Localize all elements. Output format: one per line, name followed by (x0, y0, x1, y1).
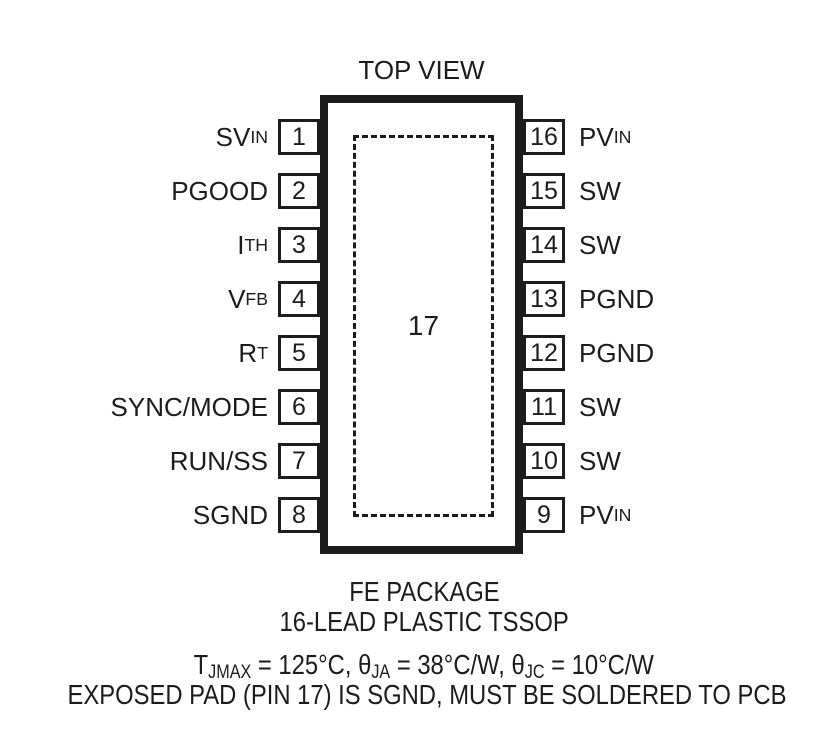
pin-label: PGND (579, 281, 654, 317)
caption-block: FE PACKAGE 16-LEAD PLASTIC TSSOP TJMAX =… (4, 577, 840, 710)
pin-number: 12 (530, 339, 558, 368)
pin-number: 9 (537, 501, 551, 530)
pin-box: 4 (278, 281, 320, 317)
pin-box: 8 (278, 497, 320, 533)
pin-number: 11 (531, 393, 557, 422)
pin-number: 15 (530, 177, 558, 206)
pin-number: 6 (292, 393, 306, 422)
pin-box: 5 (278, 335, 320, 371)
pin-label: PVIN (579, 497, 631, 533)
pin-label: PGND (579, 335, 654, 371)
pin-box: 15 (523, 173, 565, 209)
pin-row: 9PVIN (523, 497, 840, 551)
pin-number: 3 (292, 231, 306, 260)
pin-label: PVIN (579, 119, 631, 155)
pin-number: 14 (530, 231, 558, 260)
pin-label: SW (579, 389, 621, 425)
exposed-pad-note-line: EXPOSED PAD (PIN 17) IS SGND, MUST BE SO… (4, 680, 840, 710)
pin-number: 5 (292, 339, 306, 368)
right-pin-column: 16PVIN15SW14SW13PGND12PGND11SW10SW9PVIN (523, 119, 840, 551)
thermal-note-line: TJMAX = 125°C, θJA = 38°C/W, θJC = 10°C/… (4, 650, 840, 680)
pin-row: SGND8 (0, 497, 320, 551)
pin-row: RUN/SS7 (0, 443, 320, 497)
pin-box: 3 (278, 227, 320, 263)
pin-number: 16 (530, 123, 558, 152)
pin-label: SYNC/MODE (111, 389, 268, 425)
pin-row: 13PGND (523, 281, 840, 335)
pin-row: SVIN1 (0, 119, 320, 173)
pin-box: 1 (278, 119, 320, 155)
pin-box: 16 (523, 119, 565, 155)
pin-number: 4 (292, 285, 306, 314)
left-pin-column: SVIN1PGOOD2ITH3VFB4RT5SYNC/MODE6RUN/SS7S… (0, 119, 320, 551)
pin-row: 12PGND (523, 335, 840, 389)
pin-box: 10 (523, 443, 565, 479)
pin-row: 14SW (523, 227, 840, 281)
top-view-label: TOP VIEW (320, 55, 523, 85)
pin-label: VFB (228, 281, 268, 317)
pin-number: 10 (530, 447, 558, 476)
exposed-pad-number: 17 (408, 310, 439, 342)
pin-number: 13 (530, 285, 558, 314)
pin-box: 11 (523, 389, 565, 425)
pin-box: 12 (523, 335, 565, 371)
pin-box: 2 (278, 173, 320, 209)
pin-row: VFB4 (0, 281, 320, 335)
pin-box: 9 (523, 497, 565, 533)
package-name: FE PACKAGE (349, 577, 499, 607)
exposed-pad-outline: 17 (353, 135, 494, 517)
pin-box: 14 (523, 227, 565, 263)
pin-label: SW (579, 173, 621, 209)
pin-label: RT (238, 335, 268, 371)
pin-label: SGND (193, 497, 268, 533)
package-name-line: FE PACKAGE (4, 577, 840, 607)
pin-label: ITH (237, 227, 268, 263)
pin-label: RUN/SS (170, 443, 268, 479)
pin-label: SW (579, 227, 621, 263)
pin-label: SVIN (216, 119, 268, 155)
pin-row: PGOOD2 (0, 173, 320, 227)
pin-number: 1 (292, 123, 306, 152)
thermal-note: TJMAX = 125°C, θJA = 38°C/W, θJC = 10°C/… (194, 650, 654, 680)
pin-row: SYNC/MODE6 (0, 389, 320, 443)
pin-row: 15SW (523, 173, 840, 227)
pin-row: 11SW (523, 389, 840, 443)
pin-box: 6 (278, 389, 320, 425)
pin-row: 16PVIN (523, 119, 840, 173)
pin-label: SW (579, 443, 621, 479)
package-type: 16-LEAD PLASTIC TSSOP (279, 607, 568, 637)
pin-box: 7 (278, 443, 320, 479)
pin-row: 10SW (523, 443, 840, 497)
pin-label: PGOOD (171, 173, 268, 209)
pin-number: 7 (292, 447, 306, 476)
package-type-line: 16-LEAD PLASTIC TSSOP (4, 607, 840, 637)
pin-row: ITH3 (0, 227, 320, 281)
exposed-pad-note: EXPOSED PAD (PIN 17) IS SGND, MUST BE SO… (67, 680, 786, 710)
pinout-diagram: TOP VIEW 17 SVIN1PGOOD2ITH3VFB4RT5SYNC/M… (0, 0, 840, 755)
pin-box: 13 (523, 281, 565, 317)
pin-number: 8 (292, 501, 306, 530)
pin-number: 2 (292, 177, 306, 206)
pin-row: RT5 (0, 335, 320, 389)
